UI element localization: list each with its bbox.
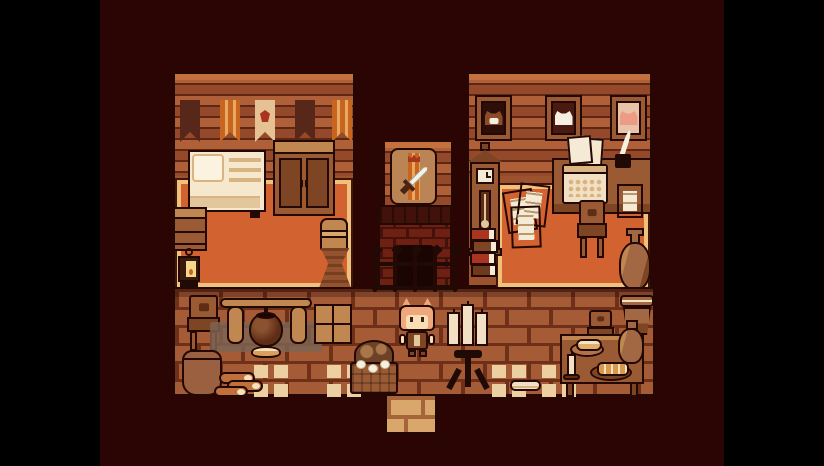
banner-dark — [180, 100, 200, 142]
candle-wick — [453, 309, 455, 314]
character-face — [406, 315, 428, 329]
game-viewport[interactable] — [100, 0, 724, 466]
bread-loaf — [510, 380, 541, 391]
chair-back — [579, 200, 605, 226]
cat-portrait-icon — [620, 111, 638, 125]
vase-body — [619, 242, 651, 290]
egg — [380, 360, 390, 369]
wardrobe-top — [275, 142, 333, 154]
pale-tile — [327, 384, 341, 397]
character-foot — [408, 350, 416, 357]
typewriter-keys — [568, 179, 602, 197]
pale-tile — [512, 365, 526, 378]
pale-tile — [254, 365, 268, 378]
character-foot — [419, 350, 427, 357]
character-eye — [410, 317, 413, 322]
lantern — [178, 248, 200, 288]
character-arm — [428, 334, 435, 345]
candle-wick — [571, 351, 573, 356]
sheep-portrait-icon — [555, 111, 573, 125]
banner-striped — [332, 100, 352, 142]
desk-chair — [577, 200, 607, 258]
bread-mound — [251, 346, 281, 358]
sword-blade — [408, 165, 429, 186]
lantern-glass — [186, 261, 196, 277]
bed-pillow — [192, 154, 224, 182]
candelabra-stand — [445, 302, 491, 387]
fence-post — [433, 246, 437, 292]
banner-crest — [255, 100, 275, 142]
common-floor — [173, 287, 655, 396]
egg — [368, 364, 378, 373]
firewood-log — [214, 386, 248, 397]
typewriter-paper — [567, 135, 593, 165]
book — [471, 264, 497, 277]
chair-seat — [577, 223, 607, 238]
dresser — [173, 207, 207, 251]
chair-leg — [597, 237, 604, 258]
chair-leg — [580, 237, 587, 258]
candelabra-leg — [446, 368, 462, 390]
pale-tile — [492, 365, 506, 378]
lantern-body — [178, 256, 200, 282]
wardrobe-door-right — [306, 158, 329, 208]
desk-papers — [617, 184, 643, 220]
wardrobe-door-left — [279, 158, 302, 208]
bed-leg — [250, 210, 260, 218]
table-top — [560, 334, 644, 384]
table-candle — [567, 354, 576, 376]
chair-back-hole — [597, 317, 605, 322]
jug-body — [618, 328, 644, 364]
character-arm — [399, 334, 406, 345]
clock-pendulum-bob — [481, 220, 489, 228]
typewriter-roller — [564, 166, 606, 174]
clay-vase — [619, 228, 651, 290]
portrait-frame-dog — [475, 95, 512, 141]
pot-rim — [620, 295, 654, 307]
left-room — [173, 72, 355, 287]
pie-plate — [590, 364, 632, 381]
paper-sheet — [617, 184, 643, 218]
lantern-hook — [185, 248, 193, 256]
typewriter — [562, 164, 608, 204]
ink-pot — [615, 154, 631, 168]
candle-wick — [481, 309, 483, 314]
candelabra-leg — [474, 368, 490, 390]
wardrobe — [273, 140, 335, 216]
fence-post — [373, 246, 377, 292]
clock-finial — [480, 142, 490, 151]
iron-fence — [372, 246, 458, 292]
dog-portrait-icon — [485, 111, 503, 125]
pale-tile — [274, 365, 288, 378]
banner-striped — [220, 100, 240, 142]
pale-tile — [274, 384, 288, 397]
fireplace-mantle — [380, 207, 450, 225]
right-room — [467, 72, 652, 287]
chair-back — [189, 295, 218, 320]
clock-face — [476, 168, 494, 184]
character-eye — [421, 317, 424, 322]
book-stack — [470, 228, 498, 280]
portrait-frame-sheep — [545, 95, 582, 141]
paper-sheet — [510, 205, 541, 248]
chair-back-hole — [199, 304, 209, 311]
table-leg — [630, 384, 638, 397]
sword-plaque — [390, 148, 437, 205]
cauldron-mouth — [256, 312, 276, 319]
fence-post — [393, 246, 397, 292]
pale-tile — [327, 365, 341, 378]
exit-corridor — [385, 396, 437, 434]
sword-icon — [391, 156, 436, 201]
chair-back — [589, 310, 612, 328]
tripod-post — [290, 306, 307, 344]
banner-emblem-icon — [260, 110, 270, 122]
candle — [447, 312, 460, 346]
clock-roof — [468, 150, 502, 162]
pale-tile — [492, 384, 506, 397]
log-end — [252, 383, 260, 389]
portrait-mat — [481, 101, 506, 135]
clock-hand — [486, 176, 491, 178]
bread — [576, 339, 602, 351]
screen — [0, 0, 824, 466]
sack-flap — [322, 230, 346, 238]
chair-back-hole — [588, 209, 597, 217]
egg — [356, 360, 366, 369]
player-character — [399, 298, 435, 360]
wardrobe-handle — [305, 180, 308, 187]
egg-basket — [350, 340, 398, 395]
candelabra-pole — [465, 357, 471, 372]
clock-pendulum-window — [479, 190, 491, 232]
candle — [475, 312, 488, 346]
sack — [320, 218, 348, 250]
dining-table — [560, 334, 644, 397]
crate — [314, 304, 352, 344]
paper-pile — [505, 182, 551, 254]
character-dress — [406, 331, 428, 350]
jug — [618, 320, 646, 364]
cauldron — [249, 312, 283, 347]
table-leg — [566, 384, 574, 397]
lantern-flame — [189, 269, 193, 275]
character-bib — [414, 335, 420, 346]
pale-tile — [542, 384, 556, 397]
pie — [597, 362, 629, 376]
candelabra-leg — [465, 371, 471, 387]
wardrobe-handle — [300, 180, 303, 187]
banner-dark — [295, 100, 315, 142]
pale-tile — [542, 365, 556, 378]
candle — [461, 304, 474, 346]
portrait-mat — [551, 101, 576, 135]
chair-leg — [190, 331, 197, 351]
log-end — [237, 389, 245, 395]
tripod-crossbar — [220, 298, 312, 308]
tripod-post — [227, 306, 244, 344]
dog-snout — [489, 118, 498, 124]
fence-post — [413, 246, 417, 292]
candle-wick — [467, 301, 469, 306]
bed-blanket-folds — [229, 158, 261, 182]
fence-post — [453, 246, 457, 292]
clock-pendulum — [484, 194, 486, 222]
